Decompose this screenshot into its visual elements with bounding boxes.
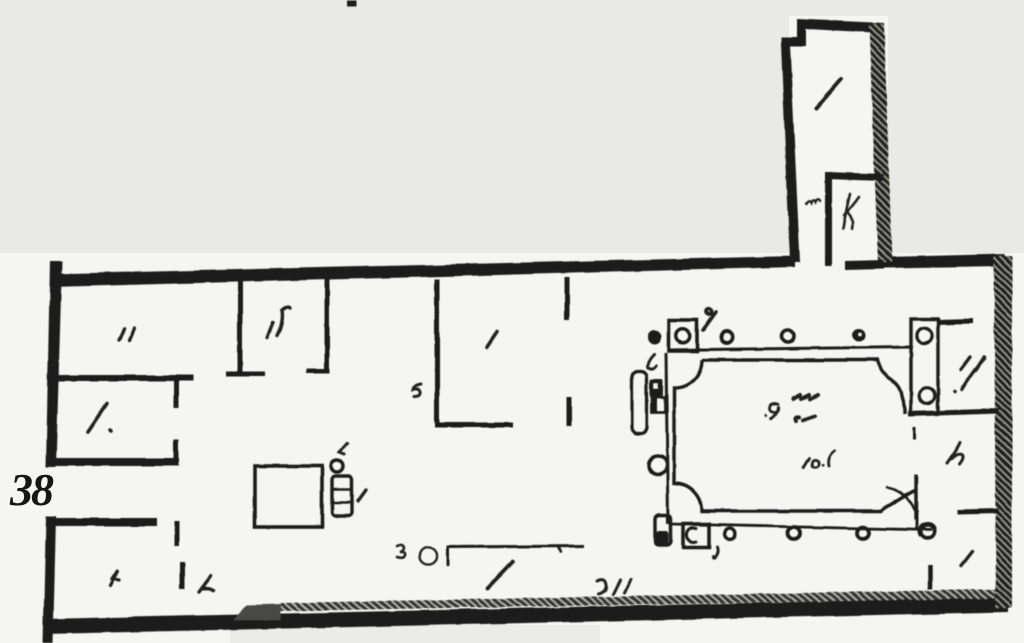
svg-text:38: 38 [9, 464, 54, 515]
